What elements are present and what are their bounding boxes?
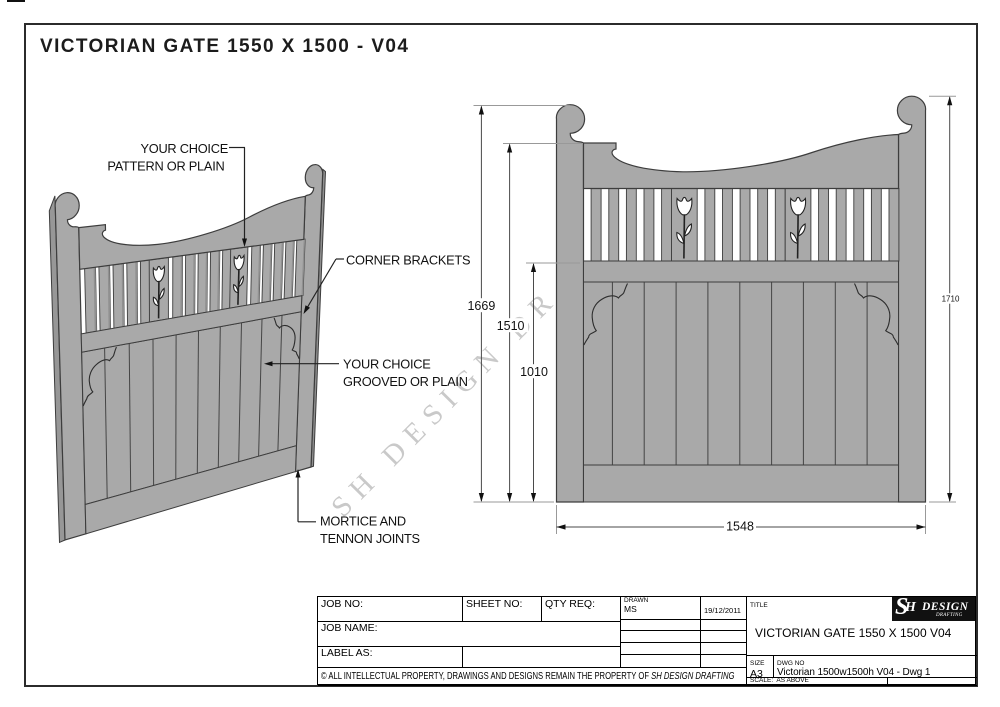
svg-text:GROOVED OR PLAIN: GROOVED OR PLAIN (343, 374, 468, 389)
svg-text:1010: 1010 (520, 365, 548, 379)
svg-text:1710: 1710 (942, 295, 960, 304)
svg-text:CORNER BRACKETS: CORNER BRACKETS (346, 253, 470, 268)
svg-text:MORTICE AND: MORTICE AND (320, 514, 406, 529)
svg-text:1510: 1510 (497, 319, 525, 333)
svg-text:1669: 1669 (467, 299, 495, 313)
svg-text:YOUR CHOICE: YOUR CHOICE (343, 357, 431, 372)
svg-text:YOUR CHOICE: YOUR CHOICE (140, 141, 228, 156)
svg-text:TENNON JOINTS: TENNON JOINTS (320, 531, 420, 546)
svg-text:PATTERN OR PLAIN: PATTERN OR PLAIN (107, 159, 224, 174)
svg-text:1548: 1548 (726, 520, 754, 534)
